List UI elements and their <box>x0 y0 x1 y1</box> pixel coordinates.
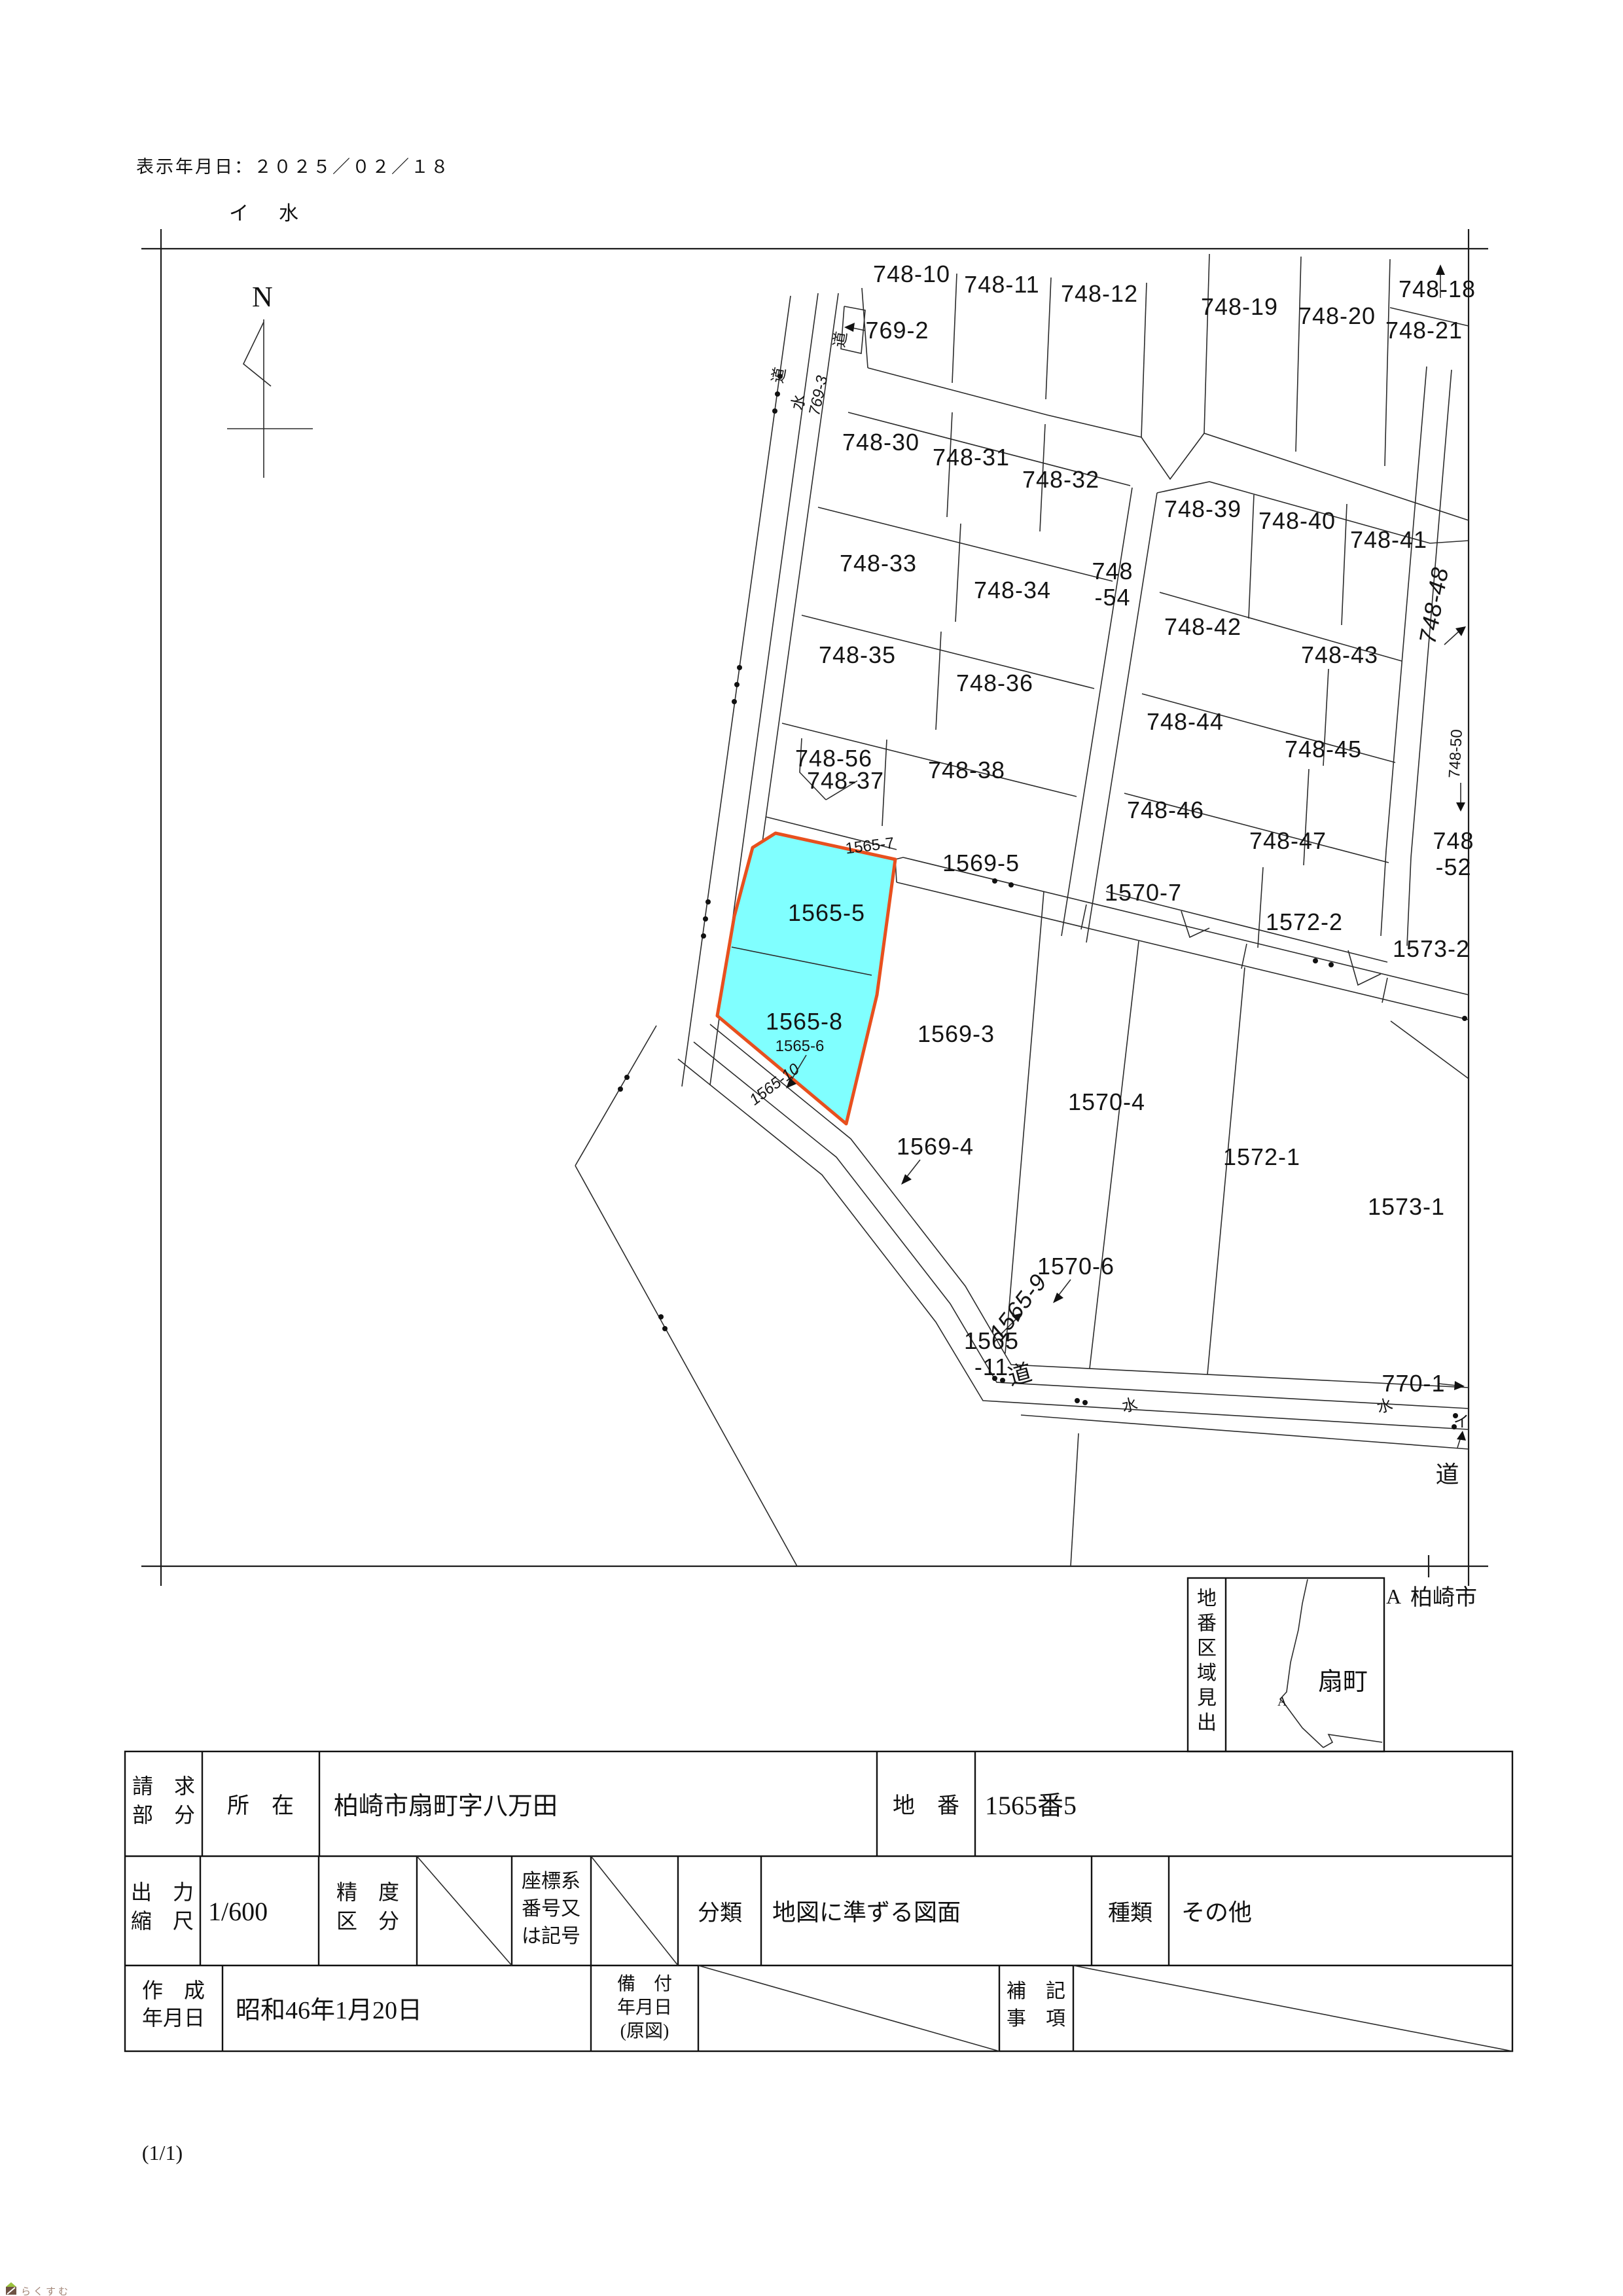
parcel-label-1565-11-line1: 1565 <box>964 1327 1019 1354</box>
table-header-equipped-line3: (原図) <box>620 2021 669 2041</box>
table-header-note-line2: 事 項 <box>1007 2008 1065 2030</box>
metadata-table: 請 求 部 分 所 在 柏崎市扇町字八万田 地 番 1565番5 出 力 縮 尺… <box>125 1751 1512 2051</box>
parcel-label-748-50: 748-50 <box>1446 729 1466 779</box>
locator-title-char-6: 出 <box>1197 1712 1217 1734</box>
table-header-equipped-line2: 年月日 <box>617 1997 672 2018</box>
parcel-label-748-52-line1: 748 <box>1433 827 1474 854</box>
parcel-label-748-42: 748-42 <box>1164 613 1241 640</box>
parcel-label-748-32: 748-32 <box>1022 466 1099 493</box>
parcel-label-748-37: 748-37 <box>807 767 884 794</box>
logo-roof-icon <box>6 2282 16 2287</box>
table-header-scale-line2: 縮 尺 <box>131 1909 194 1933</box>
watermark-text: らくすむ <box>21 2286 71 2296</box>
parcel-label-748-20: 748-20 <box>1298 302 1376 329</box>
locator-title-char-4: 域 <box>1197 1662 1217 1684</box>
table-header-request-line2: 部 分 <box>132 1803 195 1827</box>
i-katakana-mark: イ <box>1454 1413 1469 1431</box>
parcel-label-748-10: 748-10 <box>873 260 950 287</box>
locator-title-char-1: 地 <box>1197 1588 1217 1609</box>
highlight-polygon <box>717 833 895 1124</box>
table-value-scale: 1/600 <box>208 1897 268 1926</box>
road-kanji-strip: 道 <box>769 366 789 385</box>
parcel-label-748-48: 748-48 <box>1414 565 1454 645</box>
parcel-label-748-46: 748-46 <box>1127 797 1204 823</box>
parcel-label-1570-4: 1570-4 <box>1068 1088 1145 1115</box>
watermark-logo: らくすむ <box>6 2282 71 2296</box>
parcel-label-748-34: 748-34 <box>974 577 1051 603</box>
parcel-label-748-19: 748-19 <box>1201 293 1278 320</box>
display-date: 表示年月日：２０２５／０２／１８ <box>136 157 450 177</box>
parcel-label-1573-2: 1573-2 <box>1393 935 1470 962</box>
table-header-created-line1: 作 成 <box>142 1979 205 2002</box>
parcel-label-748-38: 748-38 <box>928 757 1005 783</box>
table-header-class: 分類 <box>698 1901 742 1926</box>
table-value-location: 柏崎市扇町字八万田 <box>334 1793 558 1820</box>
parcel-label-748-54-line1: 748 <box>1092 558 1133 584</box>
parcel-label-1570-6: 1570-6 <box>1037 1253 1115 1280</box>
north-arrow: N <box>227 281 313 478</box>
table-value-chiban: 1565番5 <box>985 1791 1077 1820</box>
cadastral-map-page: 表示年月日：２０２５／０２／１８ イ 水 N <box>0 0 1623 2296</box>
water-kanji-right: 水 <box>1375 1396 1395 1417</box>
table-header-location: 所 在 <box>227 1793 294 1818</box>
table-header-scale-line1: 出 力 <box>131 1880 194 1904</box>
parcel-label-748-30: 748-30 <box>842 429 919 456</box>
locator-inner-marker: A <box>1277 1695 1287 1709</box>
parcel-label-748-18: 748-18 <box>1399 276 1476 302</box>
table-header-chiban: 地 番 <box>893 1793 959 1818</box>
parcel-label-748-35: 748-35 <box>819 641 896 668</box>
table-header-created-line2: 年月日 <box>142 2006 205 2030</box>
parcel-label-748-21: 748-21 <box>1385 317 1463 344</box>
parcel-label-1573-1: 1573-1 <box>1368 1193 1445 1220</box>
road-kanji-big: 道 <box>1435 1461 1459 1488</box>
parcel-label-1569-5: 1569-5 <box>942 850 1020 876</box>
page-indicator: (1/1) <box>142 2141 183 2164</box>
parcel-label-748-11: 748-11 <box>964 271 1039 298</box>
table-header-coord-line2: 番号又 <box>522 1898 580 1920</box>
parcel-label-748-36: 748-36 <box>956 670 1033 696</box>
parcel-label-1569-4: 1569-4 <box>897 1133 974 1160</box>
table-header-precision-line1: 精 度 <box>336 1880 399 1904</box>
table-header-precision-line2: 区 分 <box>336 1909 399 1933</box>
table-header-equipped-line1: 備 付 <box>617 1973 672 1994</box>
parcel-labels: 769-2 748-10 748-11 748-12 748-19 748-20… <box>746 260 1476 1397</box>
parcel-label-769-2: 769-2 <box>865 317 929 344</box>
parcel-label-1565-8: 1565-8 <box>766 1008 843 1035</box>
parcel-label-748-43: 748-43 <box>1301 641 1378 668</box>
parcel-label-748-33: 748-33 <box>840 550 917 577</box>
parcel-label-748-40: 748-40 <box>1258 507 1336 534</box>
parcel-label-748-31: 748-31 <box>933 444 1010 471</box>
locator-inset: 地 番 区 域 見 出 扇町 A A 柏崎市 <box>1188 1578 1477 1751</box>
parcel-label-748-39: 748-39 <box>1164 495 1241 522</box>
locator-title-char-2: 番 <box>1197 1613 1217 1634</box>
parcel-label-748-47: 748-47 <box>1249 827 1327 854</box>
parcel-label-1565-5: 1565-5 <box>788 899 865 926</box>
highlighted-parcel-1565-5 <box>717 833 895 1124</box>
parcel-label-748-54-line2: -54 <box>1094 584 1130 611</box>
parcel-label-770-1: 770-1 <box>1382 1370 1445 1397</box>
parcel-label-1569-3: 1569-3 <box>918 1020 995 1047</box>
table-header-note-line1: 補 記 <box>1007 1981 1065 2002</box>
water-kanji-lower-road: 水 <box>1120 1395 1139 1416</box>
table-header-kind: 種類 <box>1108 1901 1152 1926</box>
parcel-label-748-52-line2: -52 <box>1435 853 1471 880</box>
locator-area-name: 扇町 <box>1318 1668 1368 1696</box>
north-label: N <box>252 281 273 313</box>
locator-outer-marker: A <box>1386 1585 1401 1608</box>
locator-title-char-5: 見 <box>1197 1687 1217 1709</box>
locator-city-label: 柏崎市 <box>1410 1585 1477 1610</box>
parcel-label-748-41: 748-41 <box>1350 526 1427 553</box>
parcel-label-1565-6: 1565-6 <box>776 1037 825 1055</box>
map-header-annotation: イ 水 <box>229 203 304 224</box>
parcel-label-748-44: 748-44 <box>1147 708 1224 735</box>
parcel-label-1570-7: 1570-7 <box>1105 879 1182 906</box>
locator-title-char-3: 区 <box>1197 1638 1217 1659</box>
table-value-class: 地図に準ずる図面 <box>772 1899 961 1926</box>
parcel-label-1572-1: 1572-1 <box>1223 1143 1300 1170</box>
table-value-kind: その他 <box>1181 1899 1252 1926</box>
parcel-label-748-12: 748-12 <box>1061 280 1138 307</box>
road-kanji-lower-road: 道 <box>1005 1358 1035 1390</box>
parcel-label-1572-2: 1572-2 <box>1266 908 1343 935</box>
table-header-request-line1: 請 求 <box>132 1774 195 1798</box>
table-header-coord-line1: 座標系 <box>522 1871 580 1892</box>
parcel-label-1565-7: 1565-7 <box>844 834 895 858</box>
table-header-coord-line3: は記号 <box>522 1926 580 1947</box>
table-value-created: 昭和46年1月20日 <box>236 1997 422 2024</box>
parcel-label-1565-11-line2: -11 <box>974 1354 1008 1380</box>
parcel-label-769-3: 769-3 <box>806 374 831 417</box>
parcel-label-748-45: 748-45 <box>1285 736 1362 762</box>
road-kanji-strip-top: 道 <box>830 331 851 349</box>
